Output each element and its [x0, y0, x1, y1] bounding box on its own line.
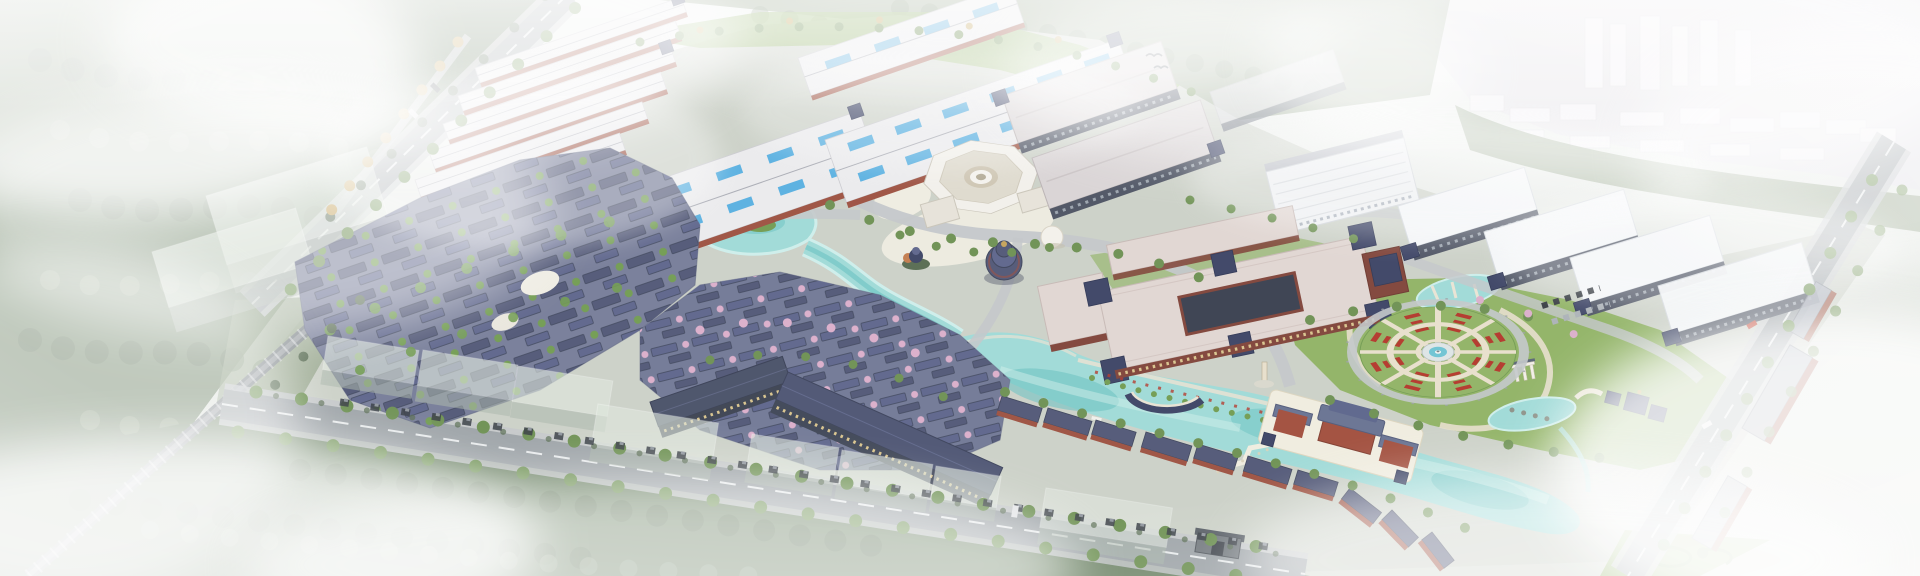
aerial-masterplan-rendering — [0, 0, 1920, 576]
mist-overlays — [0, 0, 1920, 576]
